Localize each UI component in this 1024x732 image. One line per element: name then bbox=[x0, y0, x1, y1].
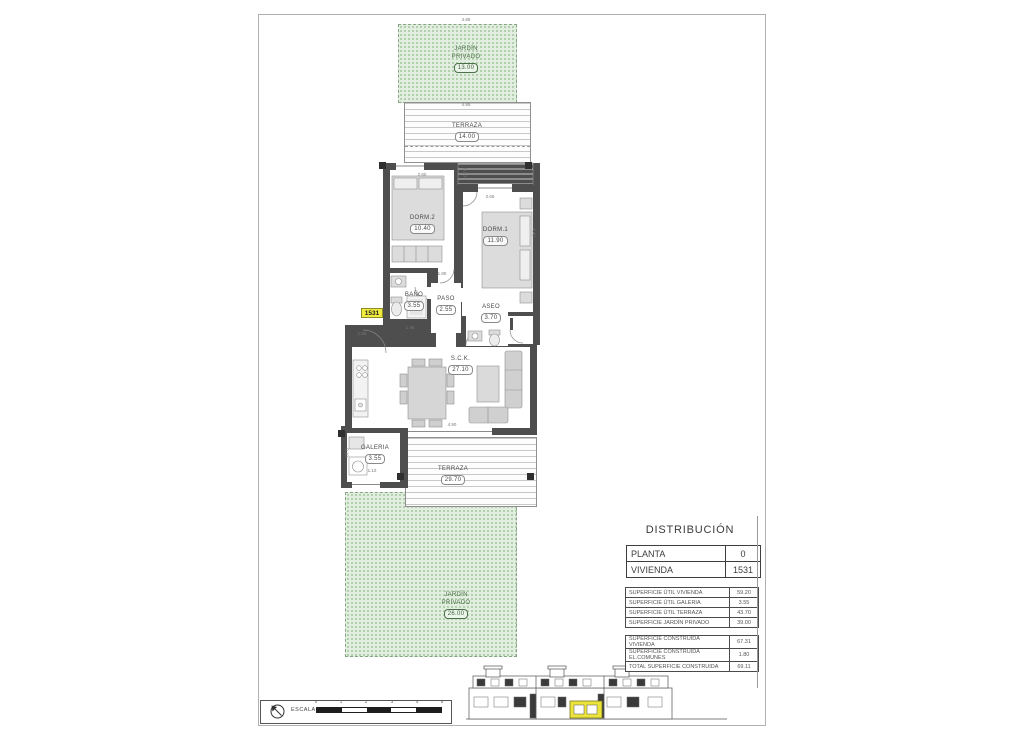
scale-tick: 4 bbox=[413, 699, 421, 704]
info-label: VIVIENDA bbox=[627, 562, 726, 578]
room-label-paso: PASO 2.55 bbox=[428, 296, 464, 315]
table-row: SUPERFICIE ÚTIL VIVIENDA 59.20 bbox=[626, 588, 759, 598]
useful-area-table: SUPERFICIE ÚTIL VIVIENDA 59.20 SUPERFICI… bbox=[625, 587, 759, 628]
table-row: SUPERFICIE CONSTRUIDA VIVIENDA 67.31 bbox=[626, 636, 759, 649]
sofa-icon bbox=[505, 351, 522, 408]
scale-tick: 3 bbox=[388, 699, 396, 704]
room-label-terraza-bottom: TERRAZA 29.70 bbox=[428, 466, 478, 485]
area-badge: 13.00 bbox=[454, 63, 479, 73]
room-label-sck: S.C.K. 27.10 bbox=[438, 356, 483, 375]
area-badge: 3.55 bbox=[365, 454, 386, 464]
table-row: SUPERFICIE ÚTIL TERRAZA 43.70 bbox=[626, 608, 759, 618]
nightstand-icon bbox=[520, 198, 532, 209]
area-badge: 11.90 bbox=[483, 236, 507, 246]
area-badge: 14.00 bbox=[455, 132, 480, 142]
info-label: PLANTA bbox=[627, 546, 726, 562]
room-label-aseo: ASEO 3.70 bbox=[473, 304, 509, 323]
nightstand-icon bbox=[520, 292, 532, 303]
dimension-label: 4.90 bbox=[440, 422, 464, 427]
area-badge: 27.10 bbox=[448, 365, 473, 375]
room-label-galeria: GALERIA 3.55 bbox=[356, 445, 394, 464]
dimension-label: 4.85 bbox=[452, 102, 480, 107]
distribution-title: DISTRIBUCIÓN bbox=[626, 524, 754, 536]
room-label-dorm2: DORM.2 10.40 bbox=[395, 215, 450, 234]
scale-tick: 5 bbox=[438, 699, 446, 704]
area-badge: 29.70 bbox=[441, 475, 466, 485]
wardrobe-icon bbox=[392, 246, 442, 262]
scale-bar bbox=[316, 707, 442, 713]
terrace-strip bbox=[458, 163, 533, 185]
scale-tick: 2 bbox=[362, 699, 370, 704]
dimension-label: 2.60 bbox=[408, 172, 436, 177]
unit-number-tag: 1531 bbox=[361, 308, 383, 318]
info-value: 0 bbox=[726, 546, 761, 562]
door-leaf bbox=[510, 318, 513, 330]
room-label-bano: BAÑO 3.55 bbox=[396, 292, 432, 311]
floor-plan-graphic bbox=[0, 0, 1024, 732]
scale-tick: 1 bbox=[337, 699, 345, 704]
elevation-key-plan bbox=[466, 666, 727, 719]
dining-table-icon bbox=[408, 367, 446, 419]
dimension-label: 1.10 bbox=[360, 468, 384, 473]
dimension-label: 4.85 bbox=[452, 17, 480, 22]
dimension-label: 1.05 bbox=[350, 331, 374, 336]
table-row: SUPERFICIE CONSTRUIDA EL.COMUNES 1.80 bbox=[626, 649, 759, 662]
table-row: SUPERFICIE ÚTIL GALERIA 3.55 bbox=[626, 598, 759, 608]
info-table: PLANTA 0 VIVIENDA 1531 bbox=[626, 545, 761, 578]
built-area-table: SUPERFICIE CONSTRUIDA VIVIENDA 67.31 SUP… bbox=[625, 635, 759, 672]
table-row: SUPERFICIE JARDÍN PRIVADO 39.00 bbox=[626, 618, 759, 628]
table-row: VIVIENDA 1531 bbox=[627, 562, 761, 578]
room-label-garden-top: JARDÍN PRIVADO 13.00 bbox=[430, 46, 502, 73]
area-badge: 10.40 bbox=[410, 224, 435, 234]
area-badge: 2.55 bbox=[436, 305, 457, 315]
title-block-divider bbox=[757, 516, 758, 688]
table-row: PLANTA 0 bbox=[627, 546, 761, 562]
room-label-garden-bottom: JARDÍN PRIVADO 26.00 bbox=[425, 592, 487, 619]
dimension-label: 0.10 bbox=[345, 443, 350, 463]
dimension-label: 4.40 bbox=[532, 223, 537, 243]
sofa-icon bbox=[469, 407, 508, 423]
dimension-label: 0.80 bbox=[463, 163, 468, 183]
dimension-label: 1.45 bbox=[398, 325, 422, 330]
dimension-label: 1.80 bbox=[430, 271, 454, 276]
area-badge: 3.55 bbox=[404, 301, 425, 311]
info-value: 1531 bbox=[726, 562, 761, 578]
area-badge: 26.00 bbox=[444, 609, 469, 619]
room-label-dorm1: DORM.1 11.90 bbox=[468, 227, 523, 246]
room-label-terraza-top: TERRAZA 14.00 bbox=[432, 123, 502, 142]
drawing-sheet: { "sheet": { "title_block": { "title": "… bbox=[0, 0, 1024, 732]
area-badge: 3.70 bbox=[481, 313, 502, 323]
dimension-label: 2.65 bbox=[476, 194, 504, 199]
table-row: TOTAL SUPERFICIE CONSTRUIDA 69.11 bbox=[626, 662, 759, 672]
scale-tick: 0 bbox=[312, 699, 320, 704]
